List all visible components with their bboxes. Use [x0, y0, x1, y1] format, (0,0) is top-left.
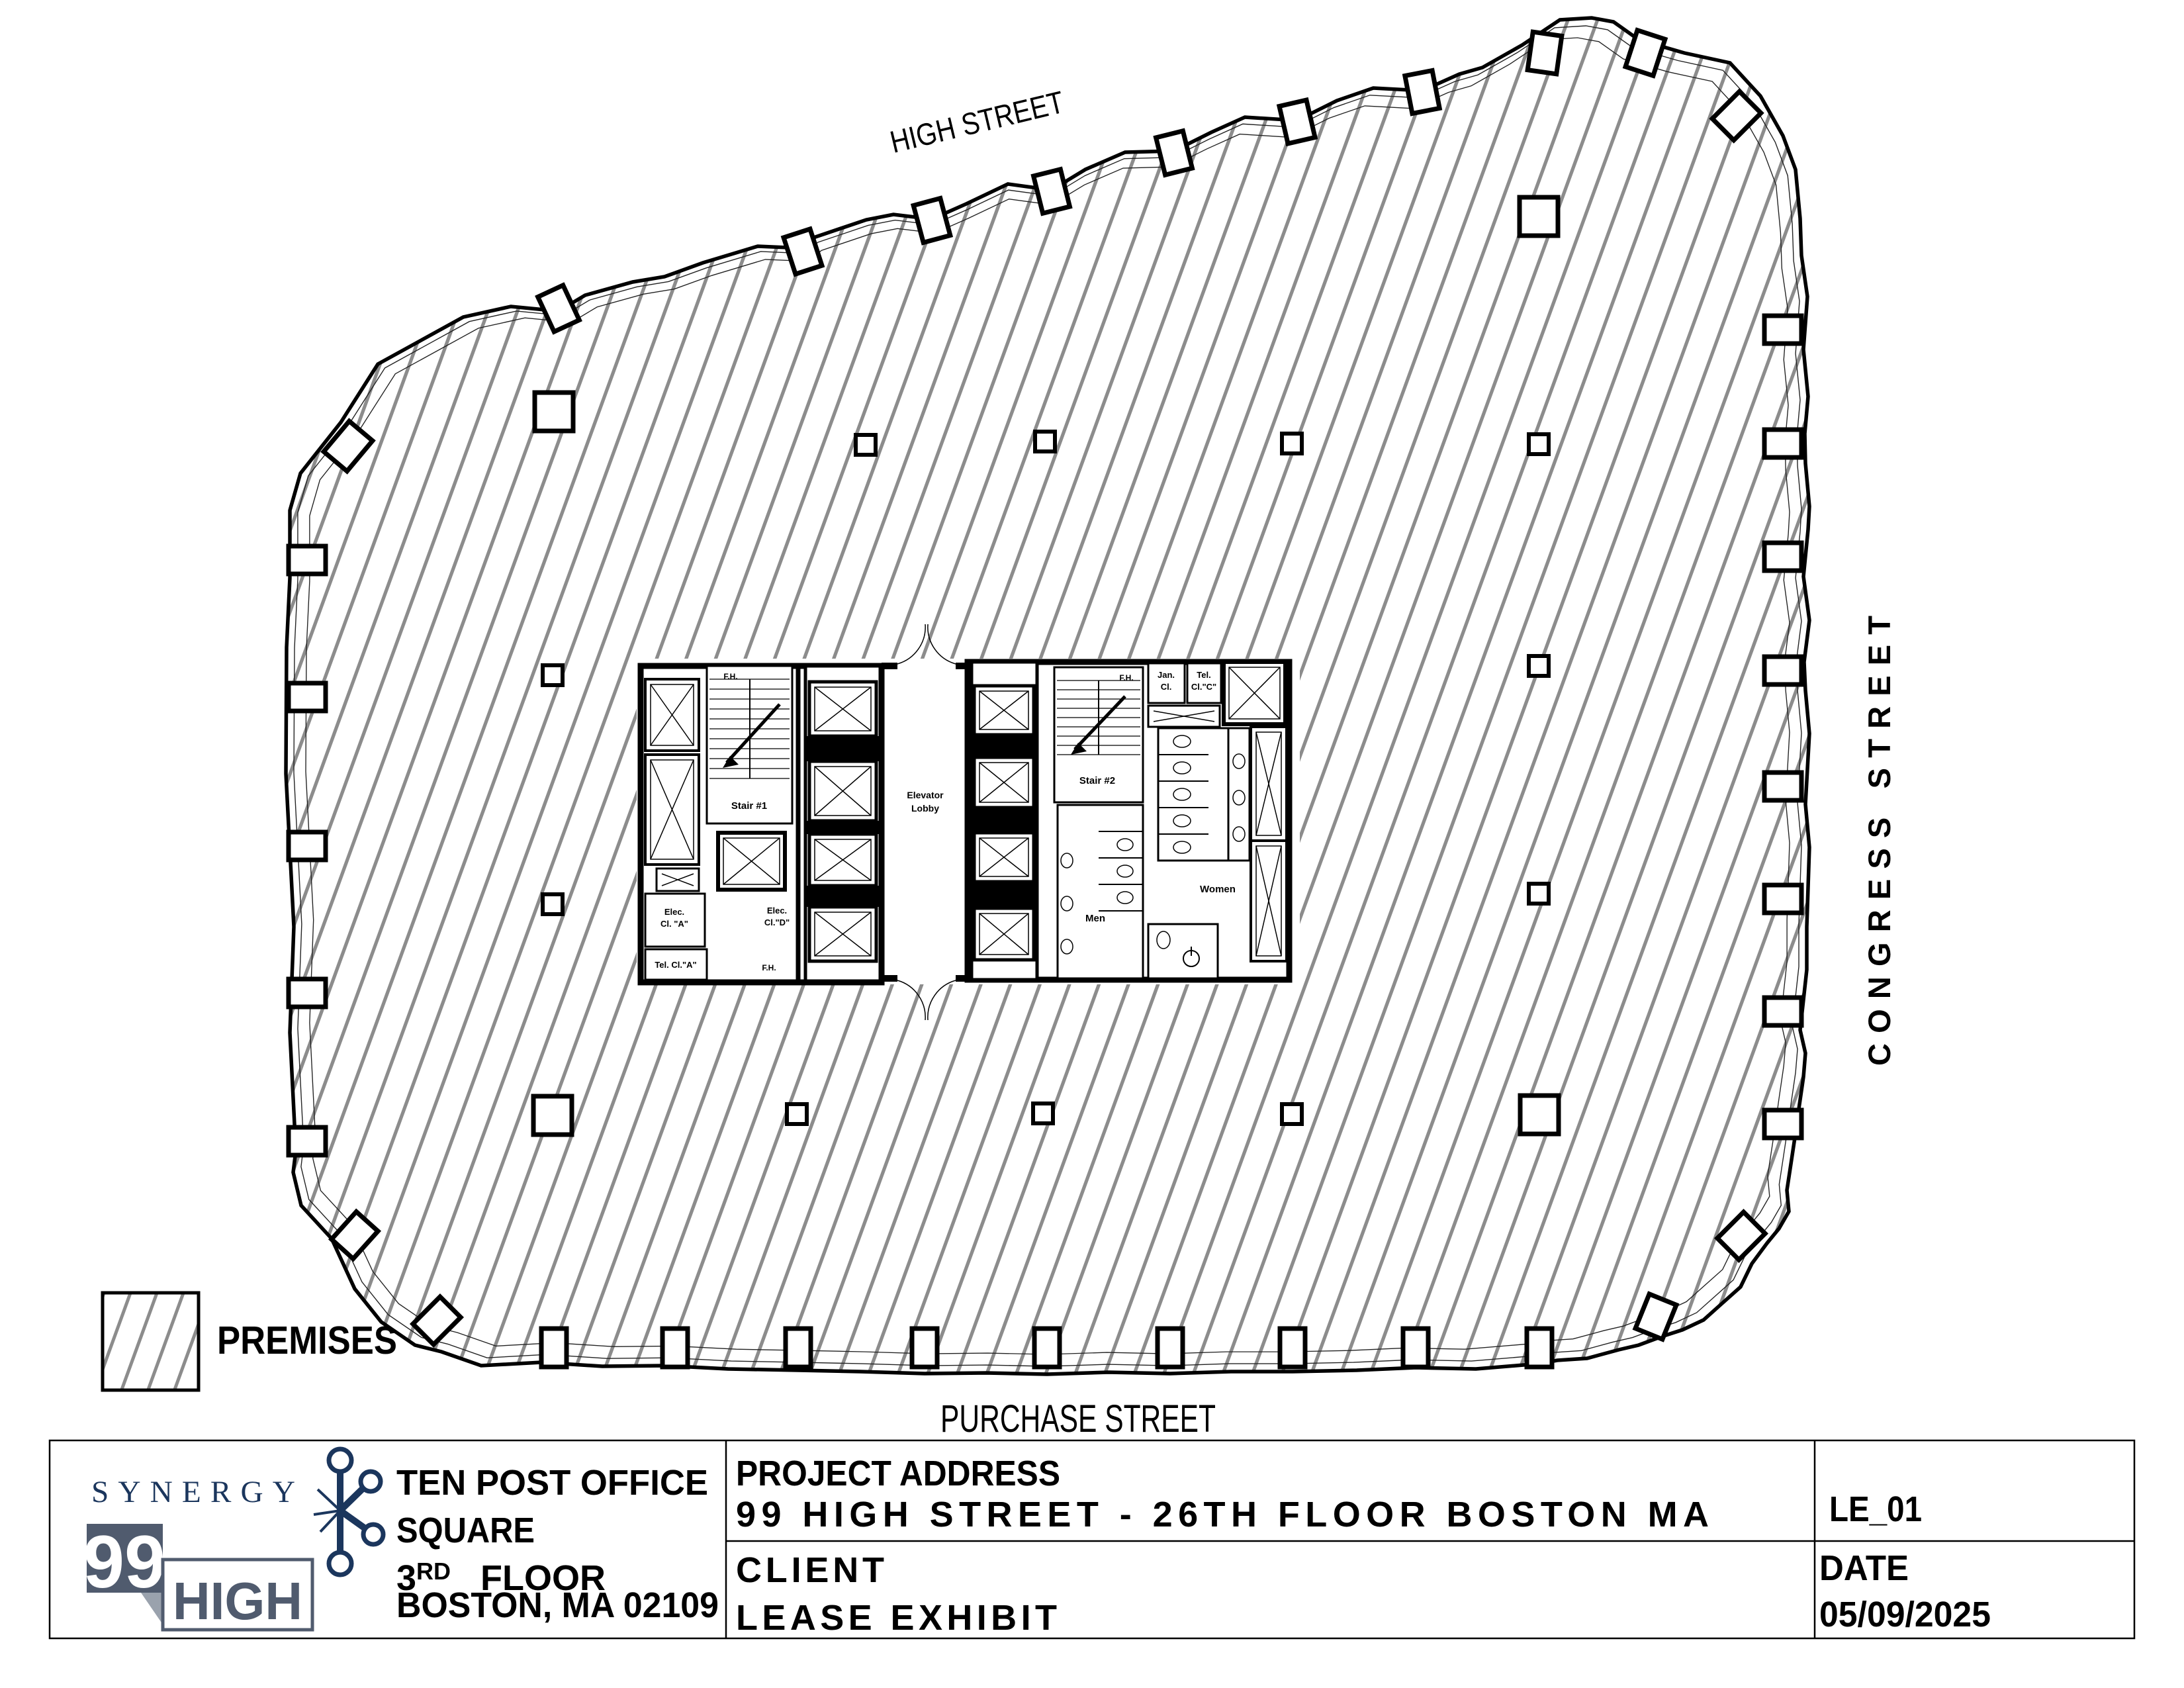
svg-text:PURCHASE STREET: PURCHASE STREET — [940, 1397, 1216, 1440]
svg-text:99: 99 — [83, 1521, 166, 1603]
svg-text:F.H.: F.H. — [762, 963, 776, 972]
svg-text:Cl. "A": Cl. "A" — [660, 919, 688, 929]
svg-text:Lobby: Lobby — [911, 803, 939, 814]
svg-text:Elec.: Elec. — [767, 906, 787, 915]
svg-text:Jan.: Jan. — [1158, 670, 1175, 680]
svg-text:05/09/2025: 05/09/2025 — [1819, 1595, 1991, 1634]
svg-text:Cl.: Cl. — [1161, 682, 1172, 692]
svg-text:F.H.: F.H. — [723, 672, 737, 681]
svg-text:HIGH: HIGH — [173, 1571, 302, 1630]
svg-text:Women: Women — [1200, 884, 1236, 895]
svg-text:Elevator: Elevator — [907, 790, 944, 800]
svg-text:SYNERGY: SYNERGY — [91, 1475, 304, 1509]
svg-text:Elec.: Elec. — [664, 907, 684, 917]
svg-text:Tel.: Tel. — [1197, 670, 1210, 680]
svg-text:BOSTON, MA 02109: BOSTON, MA 02109 — [396, 1585, 719, 1625]
svg-text:Men: Men — [1085, 913, 1105, 924]
svg-text:Tel. Cl."A": Tel. Cl."A" — [655, 960, 696, 970]
svg-text:LE_01: LE_01 — [1829, 1489, 1922, 1529]
svg-text:Cl."C": Cl."C" — [1191, 682, 1216, 692]
svg-text:Cl."D": Cl."D" — [764, 917, 790, 927]
svg-text:DATE: DATE — [1819, 1548, 1909, 1588]
svg-text:LEASE EXHIBIT: LEASE EXHIBIT — [736, 1598, 1057, 1638]
svg-text:Stair #2: Stair #2 — [1079, 775, 1115, 786]
svg-text:SQUARE: SQUARE — [396, 1511, 535, 1550]
svg-text:PROJECT ADDRESS: PROJECT ADDRESS — [736, 1454, 1060, 1493]
svg-text:F.H.: F.H. — [1119, 673, 1133, 682]
svg-text:PREMISES: PREMISES — [217, 1319, 397, 1362]
svg-text:CLIENT: CLIENT — [736, 1550, 884, 1590]
svg-text:Stair #1: Stair #1 — [731, 800, 767, 812]
svg-text:TEN POST OFFICE: TEN POST OFFICE — [396, 1463, 708, 1503]
